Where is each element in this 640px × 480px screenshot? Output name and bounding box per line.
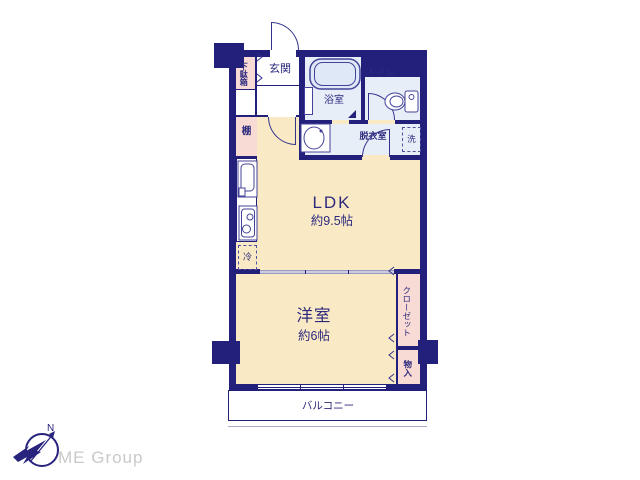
window-sash-tick <box>343 384 344 390</box>
compass-logo: N <box>10 420 64 474</box>
storage-label: 物入 <box>402 353 412 383</box>
sliding-door-divider <box>348 270 349 274</box>
bathtub-icon <box>308 57 362 91</box>
compass-north-label: N <box>47 423 54 434</box>
wall <box>301 155 362 160</box>
window-sash-tick <box>300 384 301 390</box>
closet-door-chevron <box>388 333 395 343</box>
wall <box>396 274 398 384</box>
bath-label: 浴室 <box>312 95 356 107</box>
wall <box>349 120 368 124</box>
kitchen-sink-icon <box>237 160 258 198</box>
closet-label: クローゼット <box>401 277 411 345</box>
company-logo-text: ME Group <box>58 448 168 468</box>
hallway <box>257 86 299 115</box>
ldk-title: LDK <box>299 193 365 213</box>
washing-machine-box: 洗 <box>402 127 421 152</box>
bath-door-mark <box>348 110 356 118</box>
pillar <box>418 340 438 364</box>
fridge-label: 冷 <box>243 252 252 262</box>
entry-cell <box>236 90 255 115</box>
dressing-label: 脱衣室 <box>350 131 396 141</box>
pillar <box>212 341 240 364</box>
wall <box>296 50 363 57</box>
western-size: 約6帖 <box>283 329 345 343</box>
getabako-label: 下駄箱 <box>239 59 248 89</box>
western-title: 洋室 <box>283 307 345 326</box>
toilet-icon <box>384 89 420 115</box>
closet-door-chevron <box>388 373 395 383</box>
wall <box>390 155 420 160</box>
toilet-label: トイレ <box>360 69 402 80</box>
floor-plan-page: 洗 冷 下駄箱 玄関 浴室 トイレ 脱衣室 棚 LDK 約9.5帖 洋室 約6帖… <box>0 0 640 480</box>
balcony-outer-line <box>228 426 427 427</box>
stove-icon <box>238 205 258 241</box>
vanity-sink-icon <box>300 123 331 153</box>
ldk-size: 約9.5帖 <box>299 214 365 228</box>
wall <box>395 120 420 124</box>
fridge-box: 冷 <box>238 245 257 270</box>
sliding-door[interactable] <box>260 270 394 274</box>
washer-label: 洗 <box>407 135 416 145</box>
closet-door-chevron <box>388 266 395 276</box>
wall <box>396 346 420 350</box>
sliding-door-divider <box>305 270 306 274</box>
wall <box>296 115 301 117</box>
entrance-door-arc[interactable] <box>271 22 299 50</box>
genkan-door-chevron <box>256 52 263 62</box>
closet-door-chevron <box>388 350 395 360</box>
wall <box>386 384 427 390</box>
window-center-line <box>258 387 386 388</box>
wall <box>229 50 236 390</box>
wall <box>236 115 268 117</box>
wall <box>229 384 258 390</box>
genkan-label: 玄関 <box>259 63 301 76</box>
wall <box>236 156 257 158</box>
genkan-step-line <box>257 85 299 86</box>
balcony-label: バルコニー <box>288 400 368 412</box>
wall <box>420 50 427 390</box>
wall <box>236 89 255 90</box>
shelf-label: 棚 <box>236 127 257 138</box>
wall <box>255 57 257 115</box>
